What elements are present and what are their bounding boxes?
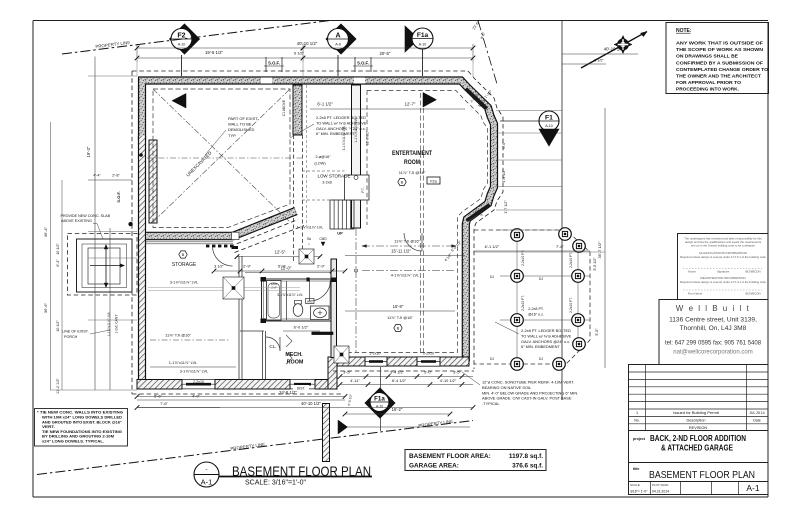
svg-text:A-1: A-1 <box>746 483 760 493</box>
svg-text:24'-8 1/2": 24'-8 1/2" <box>279 390 297 395</box>
svg-text:PROCEEDING INTO WORK.: PROCEEDING INTO WORK. <box>676 87 739 93</box>
svg-text:CONFIRMED BY A SUBMISSION OF: CONFIRMED BY A SUBMISSION OF <box>676 60 763 66</box>
svg-text:GALV. ANCHORS ⌤24" o.c.: GALV. ANCHORS ⌤24" o.c. <box>316 126 366 131</box>
svg-text:3-1⅞"x11⅞" LVL: 3-1⅞"x11⅞" LVL <box>342 125 346 150</box>
svg-text:A-10: A-10 <box>376 405 383 409</box>
svg-text:3-1⅞"x11⅞" LVL: 3-1⅞"x11⅞" LVL <box>170 280 199 285</box>
svg-text:TO WALL w/ ⅜"⌀ ADHESIVE: TO WALL w/ ⅜"⌀ ADHESIVE <box>521 333 572 338</box>
svg-text:2-2x10 PT.: 2-2x10 PT. <box>569 252 573 268</box>
svg-text:F1a: F1a <box>374 396 385 403</box>
svg-text:2-2x8 PT.: 2-2x8 PT. <box>528 307 544 311</box>
svg-text:title: title <box>633 467 639 471</box>
svg-text:F2a: F2a <box>430 180 437 184</box>
svg-text:DJ: DJ <box>490 357 494 361</box>
svg-text:15'-8": 15'-8" <box>393 304 404 309</box>
svg-text:THE OWNER AND THE ARCHITECT: THE OWNER AND THE ARCHITECT <box>676 74 761 80</box>
svg-text:1'-3 1/2": 1'-3 1/2" <box>502 169 506 183</box>
svg-text:DJ: DJ <box>490 275 494 279</box>
svg-text:5'-5": 5'-5" <box>595 328 599 336</box>
svg-text:MIN. 4'-0" BELOW GRADE AND PRO: MIN. 4'-0" BELOW GRADE AND PROJECTING 6"… <box>482 390 578 395</box>
svg-text:ENTERTAIMENT: ENTERTAIMENT <box>392 150 432 157</box>
svg-text:6'-0 1/2": 6'-0 1/2" <box>294 325 309 330</box>
svg-text:ON DRAWINGS SHALL BE: ON DRAWINGS SHALL BE <box>676 54 739 60</box>
svg-text:12'-6 1/2": 12'-6 1/2" <box>366 130 370 145</box>
svg-text:40'-10 1/2": 40'-10 1/2" <box>301 401 321 406</box>
svg-text:6'-3": 6'-3" <box>56 259 60 267</box>
svg-text:B: B <box>401 180 404 185</box>
svg-text:STORAGE: STORAGE <box>172 262 197 268</box>
svg-text:11'-2 1/2": 11'-2 1/2" <box>56 377 60 393</box>
svg-text:ABOVE EXISTING: ABOVE EXISTING <box>61 219 92 223</box>
svg-text:2-2x10 PT.: 2-2x10 PT. <box>521 295 525 311</box>
svg-text:6'-4 1/2": 6'-4 1/2" <box>392 378 407 383</box>
svg-text:Thornhill, On, L4J 3M8: Thornhill, On, L4J 3M8 <box>680 325 747 332</box>
svg-text:10 1/2": 10 1/2" <box>56 243 60 255</box>
svg-text:CL.: CL. <box>269 344 276 349</box>
svg-text:PART OF EXIST.: PART OF EXIST. <box>228 116 258 121</box>
svg-text:PORCH: PORCH <box>64 335 78 339</box>
svg-text:S.O.F.: S.O.F. <box>357 61 369 66</box>
svg-text:3-1⅞"x11⅞" LVL: 3-1⅞"x11⅞" LVL <box>180 369 209 374</box>
svg-text:11⅞" TJI @16": 11⅞" TJI @16" <box>394 239 420 244</box>
svg-text:1-1⅞"x11⅞" LVL: 1-1⅞"x11⅞" LVL <box>169 360 198 365</box>
svg-text:FOR APPROVAL PRIOR TO: FOR APPROVAL PRIOR TO <box>676 80 741 86</box>
svg-text:BASEMENT FLOOR AREA:: BASEMENT FLOOR AREA: <box>409 453 491 460</box>
svg-text:2'-9": 2'-9" <box>243 264 252 269</box>
svg-text:11⅞" TJI @16": 11⅞" TJI @16" <box>165 333 191 338</box>
svg-text:A-9: A-9 <box>335 43 341 47</box>
svg-text:-TYPICAL: -TYPICAL <box>482 401 500 406</box>
svg-text:5'-6": 5'-6" <box>154 394 162 399</box>
svg-text:MECH.: MECH. <box>285 352 303 358</box>
svg-text:⌂: ⌂ <box>308 242 310 246</box>
svg-text:B: B <box>182 252 185 257</box>
svg-text:19'-8 1/2": 19'-8 1/2" <box>205 50 224 55</box>
svg-text:set out in the Ontario buildin: set out in the Ontario building code to … <box>691 244 755 248</box>
svg-text:3-1⅞"x11⅞" LVL: 3-1⅞"x11⅞" LVL <box>277 293 303 297</box>
svg-text:40'-10 1/2": 40'-10 1/2" <box>297 41 318 46</box>
svg-text:(LOW): (LOW) <box>314 162 326 166</box>
svg-text:2-2x10: 2-2x10 <box>423 352 434 356</box>
svg-text:SCALE: 3/16"=1'-0": SCALE: 3/16"=1'-0" <box>245 480 306 487</box>
svg-text:DJ: DJ <box>539 277 543 281</box>
svg-text:PLOT DATE: PLOT DATE <box>652 483 668 487</box>
svg-text:JUL 25 14: JUL 25 14 <box>749 411 764 415</box>
svg-text:No.: No. <box>634 419 640 423</box>
svg-text:2-2x8 PT. LEDGER BOLTED: 2-2x8 PT. LEDGER BOLTED <box>316 115 366 120</box>
svg-text:BASEMENT FLOOR PLAN: BASEMENT FLOOR PLAN <box>232 464 371 479</box>
svg-text:F1: F1 <box>545 115 553 122</box>
svg-text:W.C: W.C <box>307 300 314 304</box>
svg-text:5'-5 1/2": 5'-5 1/2" <box>593 257 597 271</box>
svg-text:376.6 sq.f.: 376.6 sq.f. <box>512 463 543 470</box>
svg-text:WALL TO BE: WALL TO BE <box>228 122 252 127</box>
svg-text:7'-6": 7'-6" <box>160 401 168 406</box>
svg-text:TYP.: TYP. <box>228 133 236 138</box>
svg-text:A: A <box>335 33 340 40</box>
svg-text:6'-0": 6'-0" <box>502 141 506 149</box>
svg-text:Issued for Building Permit: Issued for Building Permit <box>673 410 719 415</box>
svg-text:2-2x10: 2-2x10 <box>193 380 204 384</box>
svg-text:P.T.: P.T. <box>361 187 365 192</box>
svg-text:6'-1 1/2": 6'-1 1/2" <box>317 102 333 107</box>
svg-text:THE SCOPE OF WORK AS SHOWN: THE SCOPE OF WORK AS SHOWN <box>676 47 764 53</box>
svg-text:tel: 647 299 0595 fax: 905 7: tel: 647 299 0595 fax: 905 761 5408 <box>665 341 762 347</box>
svg-text:3-2x8: 3-2x8 <box>322 181 332 185</box>
svg-text:6" MIN. EMBEDMENT: 6" MIN. EMBEDMENT <box>316 131 355 136</box>
svg-text:BACK, 2-ND FLOOR ADDITION: BACK, 2-ND FLOOR ADDITION <box>650 434 746 443</box>
svg-text:DJ: DJ <box>539 357 543 361</box>
svg-text:W e l l B u i l t: W e l l B u i l t <box>676 304 750 313</box>
svg-text:3'-4 1/2": 3'-4 1/2" <box>390 370 405 375</box>
svg-text:nat@wellcorecorporation.com: nat@wellcorecorporation.com <box>673 350 752 356</box>
svg-text:BCN/BCDN: BCN/BCDN <box>745 270 760 274</box>
svg-text:36'-4": 36'-4" <box>43 226 48 237</box>
svg-text:40'-10 1/2": 40'-10 1/2" <box>604 47 625 52</box>
svg-text:4'-4": 4'-4" <box>93 174 101 178</box>
svg-text:-: - <box>206 467 208 473</box>
svg-text:Signature: Signature <box>717 270 730 274</box>
svg-text:SCALE: SCALE <box>630 483 640 487</box>
svg-text:3/16"= 1'-0": 3/16"= 1'-0" <box>630 490 648 494</box>
svg-text:DEMOLISHED: DEMOLISHED <box>228 127 255 132</box>
svg-text:& ATTACHED GARAGE: & ATTACHED GARAGE <box>661 444 733 453</box>
svg-text:LINE OF EXIST.: LINE OF EXIST. <box>62 330 89 334</box>
svg-text:1197.8 sq.f.: 1197.8 sq.f. <box>509 453 543 460</box>
svg-text:6'-1 1/2": 6'-1 1/2" <box>485 244 500 249</box>
svg-text:1-1⅞"x11⅞" LVL: 1-1⅞"x11⅞" LVL <box>107 311 111 336</box>
svg-text:BCN/BCDN: BCN/BCDN <box>745 292 760 296</box>
svg-text:12'-7": 12'-7" <box>405 102 416 107</box>
svg-text:35'-7 1/2": 35'-7 1/2" <box>597 241 602 258</box>
svg-text:2-2x10 PT.: 2-2x10 PT. <box>569 297 573 313</box>
svg-text:2-2x8 PT. LEDGER BOLTED: 2-2x8 PT. LEDGER BOLTED <box>521 328 571 333</box>
svg-text:10 1/2": 10 1/2" <box>56 320 60 332</box>
svg-text:BASEMENT FLOOR PLAN: BASEMENT FLOOR PLAN <box>649 470 755 481</box>
svg-text:6 1/2": 6 1/2" <box>594 59 604 63</box>
svg-text:Name: Name <box>688 270 696 274</box>
svg-text:LOW STORAGE: LOW STORAGE <box>318 174 351 179</box>
svg-text:A-1: A-1 <box>201 478 213 487</box>
svg-text:4'-11": 4'-11" <box>350 378 360 383</box>
svg-text:REVISION: REVISION <box>689 426 707 430</box>
svg-text:A-10: A-10 <box>545 124 553 128</box>
svg-text:1: 1 <box>636 411 638 415</box>
svg-text:04.21.2014: 04.21.2014 <box>652 490 669 494</box>
svg-text:PROVIDE NEW CONC. SLAB: PROVIDE NEW CONC. SLAB <box>61 214 111 218</box>
svg-text:1136 Centre street, Unit 3139,: 1136 Centre street, Unit 3139, <box>669 317 757 324</box>
svg-text:1-1⅞"x11⅞" LVL: 1-1⅞"x11⅞" LVL <box>354 117 358 142</box>
svg-text:20'-5": 20'-5" <box>380 51 391 56</box>
svg-text:2'-8": 2'-8" <box>112 174 120 178</box>
svg-text:16'-2": 16'-2" <box>392 407 403 412</box>
svg-text:12"⌀ CONC. SONOTUBE PIER REINF: 12"⌀ CONC. SONOTUBE PIER REINF. 4-10M VE… <box>482 380 574 385</box>
svg-text:CONTEMPLATED CHANGE ORDER TO: CONTEMPLATED CHANGE ORDER TO <box>676 67 768 73</box>
svg-text:ROOM: ROOM <box>404 159 420 166</box>
svg-text:1-1⅞"x11⅞" LVL: 1-1⅞"x11⅞" LVL <box>297 226 323 230</box>
svg-text:4-1⅞"x11⅞" LVL: 4-1⅞"x11⅞" LVL <box>391 273 420 278</box>
svg-text:6" MIN. EMBEDMENT: 6" MIN. EMBEDMENT <box>521 344 560 349</box>
svg-text:11⅞" TJI @16": 11⅞" TJI @16" <box>387 315 413 320</box>
svg-text:F1a: F1a <box>417 32 429 39</box>
svg-text:1'-7 1/2": 1'-7 1/2" <box>504 200 508 214</box>
svg-text:1-LVL CANT: 1-LVL CANT <box>115 315 119 334</box>
svg-text:F2: F2 <box>177 33 185 40</box>
svg-text:Date: Date <box>753 419 761 423</box>
svg-text:2-⌀@16": 2-⌀@16" <box>315 155 331 159</box>
svg-text:S.O.F.: S.O.F. <box>116 191 121 202</box>
svg-text:2-2x10: 2-2x10 <box>370 352 381 356</box>
svg-text:3 1/2": 3 1/2" <box>214 265 224 269</box>
svg-text:15'-11 1/2": 15'-11 1/2" <box>391 249 411 254</box>
svg-text:Required unless design is exem: Required unless design is exempt under 2… <box>680 255 766 259</box>
svg-text:GARAGE AREA:: GARAGE AREA: <box>409 463 459 470</box>
svg-text:5'-0": 5'-0" <box>424 370 432 375</box>
svg-text:Firm Name: Firm Name <box>688 292 703 296</box>
svg-text:x24" LONG DOWELS. TYPICAL.: x24" LONG DOWELS. TYPICAL. <box>42 439 104 444</box>
svg-text:project: project <box>633 437 646 441</box>
svg-text:Required unless design is exem: Required unless design is exempt under 2… <box>680 280 766 284</box>
svg-text:4'-10 1/2": 4'-10 1/2" <box>440 378 457 383</box>
svg-text:4'-0": 4'-0" <box>192 394 200 399</box>
svg-text:ANY WORK THAT IS OUTSIDE OF: ANY WORK THAT IS OUTSIDE OF <box>676 41 763 47</box>
svg-text:@16" o.c.: @16" o.c. <box>528 313 544 317</box>
svg-text:DIST.: DIST. <box>297 387 305 391</box>
svg-text:CMD: CMD <box>319 237 327 241</box>
svg-text:7'-8": 7'-8" <box>556 244 565 249</box>
svg-text:11⅞" TJI @16": 11⅞" TJI @16" <box>399 170 426 175</box>
svg-text:BEARING ON NATIVE SOIL: BEARING ON NATIVE SOIL <box>482 385 532 390</box>
svg-text:3'-5": 3'-5" <box>453 370 461 375</box>
svg-text:UP: UP <box>337 231 343 236</box>
svg-text:TO WALL w/ ⅜"⌀ ADHESIVE: TO WALL w/ ⅜"⌀ ADHESIVE <box>316 120 367 125</box>
svg-text:3'-5": 3'-5" <box>343 370 351 375</box>
svg-text:B: B <box>397 326 400 331</box>
svg-text:19'-3": 19'-3" <box>86 146 91 157</box>
svg-text:C1 ABOVE: C1 ABOVE <box>282 99 286 116</box>
svg-text:2'-9": 2'-9" <box>317 264 326 269</box>
svg-text:GALV. ANCHORS @24" o.c.: GALV. ANCHORS @24" o.c. <box>521 339 570 344</box>
svg-text:Description: Description <box>687 419 706 423</box>
svg-text:A-10: A-10 <box>419 43 427 47</box>
svg-text:36'-6": 36'-6" <box>43 302 48 313</box>
svg-text:S.O.F.: S.O.F. <box>268 61 280 66</box>
svg-text:A-10: A-10 <box>178 43 186 47</box>
svg-text:12'-5": 12'-5" <box>275 250 286 255</box>
svg-text:5'-8": 5'-8" <box>278 264 287 269</box>
svg-text:2-2x10 PT.: 2-2x10 PT. <box>521 250 525 266</box>
svg-text:ABOVE GRADE. C/W CAST-IN GALV.: ABOVE GRADE. C/W CAST-IN GALV. POST BASE <box>482 396 572 401</box>
